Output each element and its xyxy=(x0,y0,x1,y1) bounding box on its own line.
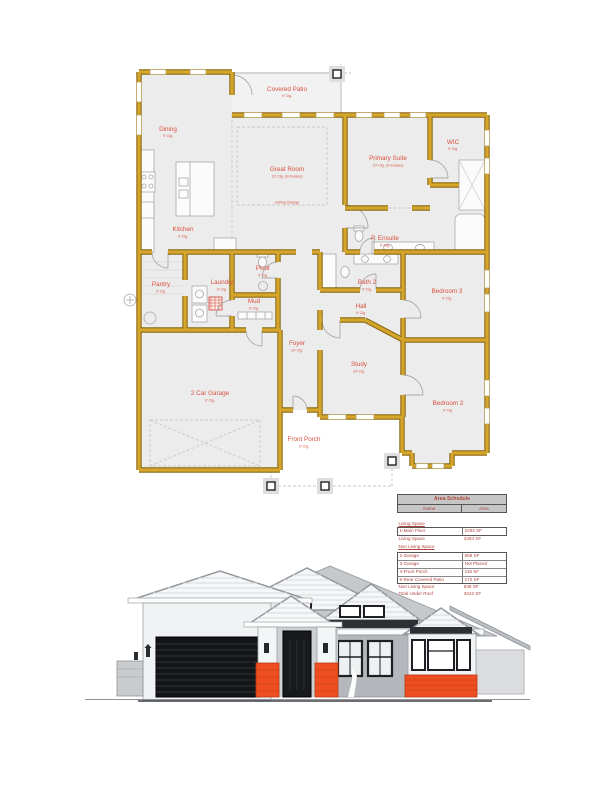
row-area: 658 SF xyxy=(463,553,506,560)
room-ceiling: 9' Clg. xyxy=(299,445,309,449)
room-ceiling: 9' Clg. xyxy=(442,297,452,301)
room-label-great-room: Great Room xyxy=(270,166,304,173)
garage-door xyxy=(156,637,259,697)
row-area: 172 SF xyxy=(463,577,506,584)
row-area: 3242 SF xyxy=(462,591,507,598)
wall-window xyxy=(368,641,392,676)
room-ceiling: 9' Clg. xyxy=(356,311,366,315)
room-ceiling: 9' Clg. xyxy=(380,244,390,248)
room-ceiling: 14' Clg. xyxy=(353,370,365,374)
room-label-pwdr: Pwdr xyxy=(256,265,270,272)
laundry-drain-hatch xyxy=(209,297,222,310)
bay-band-dark xyxy=(410,627,472,634)
room-label-wic: WIC xyxy=(447,139,460,146)
room-label-bath-2: Bath 2 xyxy=(358,279,377,286)
post xyxy=(263,478,279,494)
schedule-section-non-living: Non Living Space xyxy=(397,544,507,551)
room-ceiling: 9' Clg. xyxy=(205,399,215,403)
room-label-primary-suite: Primary Suite xyxy=(369,155,407,162)
row-name: 1-Main Floor xyxy=(398,528,463,535)
primary-shower xyxy=(459,160,485,210)
floor-plan-and-elevation-drawing: Covered Patio 9' Clg. Dining 9' Clg. Gre… xyxy=(0,0,612,792)
row-name: 2-Garage xyxy=(398,553,463,560)
wall-sconce xyxy=(134,652,138,660)
room-ceiling: 9' Clg. xyxy=(362,288,372,292)
bath2-tub xyxy=(321,254,336,288)
kitchen-island xyxy=(176,162,214,216)
room-label-bedroom-3: Bedroom 3 xyxy=(432,288,463,295)
row-name: 4-Front Porch xyxy=(398,569,463,576)
column-header-area: Area xyxy=(462,505,506,512)
bay-windows xyxy=(412,640,470,670)
room-ceiling: 9' Clg. xyxy=(448,147,458,151)
room-ceiling: 9' Clg. xyxy=(282,94,292,98)
row-name: Living Space xyxy=(397,521,462,528)
room-label-hall: Hall xyxy=(356,303,367,310)
row-area: 118 SF xyxy=(463,569,506,576)
schedule-row-total-under-roof: Total Under Roof 3242 SF xyxy=(397,591,507,598)
entry-column-left xyxy=(256,627,279,697)
wall-window xyxy=(338,641,362,676)
row-area xyxy=(462,521,507,528)
room-ceiling: 10' Clg. (in trusses) xyxy=(272,175,303,179)
room-label-p-ensuite: P. Ensuite xyxy=(371,235,399,242)
main-wall xyxy=(330,635,410,697)
row-name: Total Under Roof xyxy=(397,591,462,598)
area-schedule-title: Area Schedule xyxy=(397,494,507,505)
mud-bench xyxy=(238,312,272,319)
schedule-row-main-floor: 1-Main Floor 2294 SF xyxy=(397,527,507,536)
floor-plan: Covered Patio 9' Clg. Dining 9' Clg. Gre… xyxy=(124,64,490,494)
front-door xyxy=(283,631,311,697)
schedule-row-garage-3: 3-Garage Not Placed xyxy=(398,561,506,569)
column-sconce xyxy=(323,643,328,653)
entry-fascia xyxy=(244,622,342,627)
plan-sheet-page: Covered Patio 9' Clg. Dining 9' Clg. Gre… xyxy=(0,0,612,792)
row-area: 948 SF xyxy=(462,584,507,591)
schedule-row-garage-2: 2-Garage 658 SF xyxy=(398,553,506,561)
row-area: 2294 SF xyxy=(462,536,507,543)
schedule-row-living-total: Living Space 2294 SF xyxy=(397,536,507,543)
room-ceiling: 9' Clg. xyxy=(258,274,268,278)
room-label-bedroom-2: Bedroom 2 xyxy=(433,400,464,407)
room-ceiling: 9' Clg. xyxy=(443,409,453,413)
room-ceiling: 9' Clg. xyxy=(156,290,166,294)
kitchen-counter xyxy=(140,150,155,252)
area-schedule-header-row: Name Area xyxy=(397,505,507,513)
room-label-laundry: Laundry xyxy=(211,279,235,286)
row-area xyxy=(462,544,507,551)
room-ceiling: 14' Clg. xyxy=(291,349,303,353)
floor-drain xyxy=(124,294,136,306)
room-label-covered-patio: Covered Patio xyxy=(267,86,307,93)
room-label-dining: Dining xyxy=(159,126,177,133)
row-name: Living Space xyxy=(397,536,462,543)
room-label-mud: Mud xyxy=(248,298,261,305)
row-name: 5-Rear Covered Patio xyxy=(398,577,463,584)
row-name: 3-Garage xyxy=(398,561,463,568)
room-ceiling: 9' Clg. xyxy=(217,288,227,292)
room-label-pantry: Pantry xyxy=(152,281,171,288)
room-label-study: Study xyxy=(351,361,368,368)
row-name: Non Living Space xyxy=(397,544,462,551)
column-header-name: Name xyxy=(398,505,462,512)
row-name: Non Living Space xyxy=(397,584,462,591)
room-label-foyer: Foyer xyxy=(289,340,305,347)
bath2-toilet xyxy=(341,267,349,278)
room-ceiling: 10' Clg. (in trusses) xyxy=(373,164,404,168)
bath2-vanity xyxy=(354,254,398,264)
ceiling-change-note: Ceiling Change xyxy=(275,201,300,205)
room-label-garage: 2 Car Garage xyxy=(191,390,230,397)
ac-unit xyxy=(117,661,143,696)
row-area: Not Placed xyxy=(463,561,506,568)
schedule-section-living: Living Space xyxy=(397,521,507,528)
ground-line xyxy=(85,700,530,702)
schedule-row-rear-patio: 5-Rear Covered Patio 172 SF xyxy=(398,577,506,584)
room-ceiling: 9' Clg. xyxy=(178,235,188,239)
room-ceiling: 9' Clg. xyxy=(163,134,173,138)
room-label-kitchen: Kitchen xyxy=(172,226,194,233)
area-schedule-table: Area Schedule Name Area Living Space 1-M… xyxy=(397,494,507,598)
row-area: 2294 SF xyxy=(463,528,506,535)
bay-brick-wainscot xyxy=(405,675,477,697)
column-sconce xyxy=(264,643,269,653)
entry-column-right xyxy=(315,627,338,697)
schedule-row-non-living-total: Non Living Space 948 SF xyxy=(397,584,507,591)
post xyxy=(384,453,400,469)
post xyxy=(329,66,345,82)
schedule-row-front-porch: 4-Front Porch 118 SF xyxy=(398,569,506,577)
primary-tub xyxy=(455,214,485,254)
schedule-non-living-group: 2-Garage 658 SF 3-Garage Not Placed 4-Fr… xyxy=(397,552,507,584)
post xyxy=(317,478,333,494)
room-ceiling: 9' Clg. xyxy=(249,307,259,311)
room-label-front-porch: Front Porch xyxy=(288,436,321,443)
